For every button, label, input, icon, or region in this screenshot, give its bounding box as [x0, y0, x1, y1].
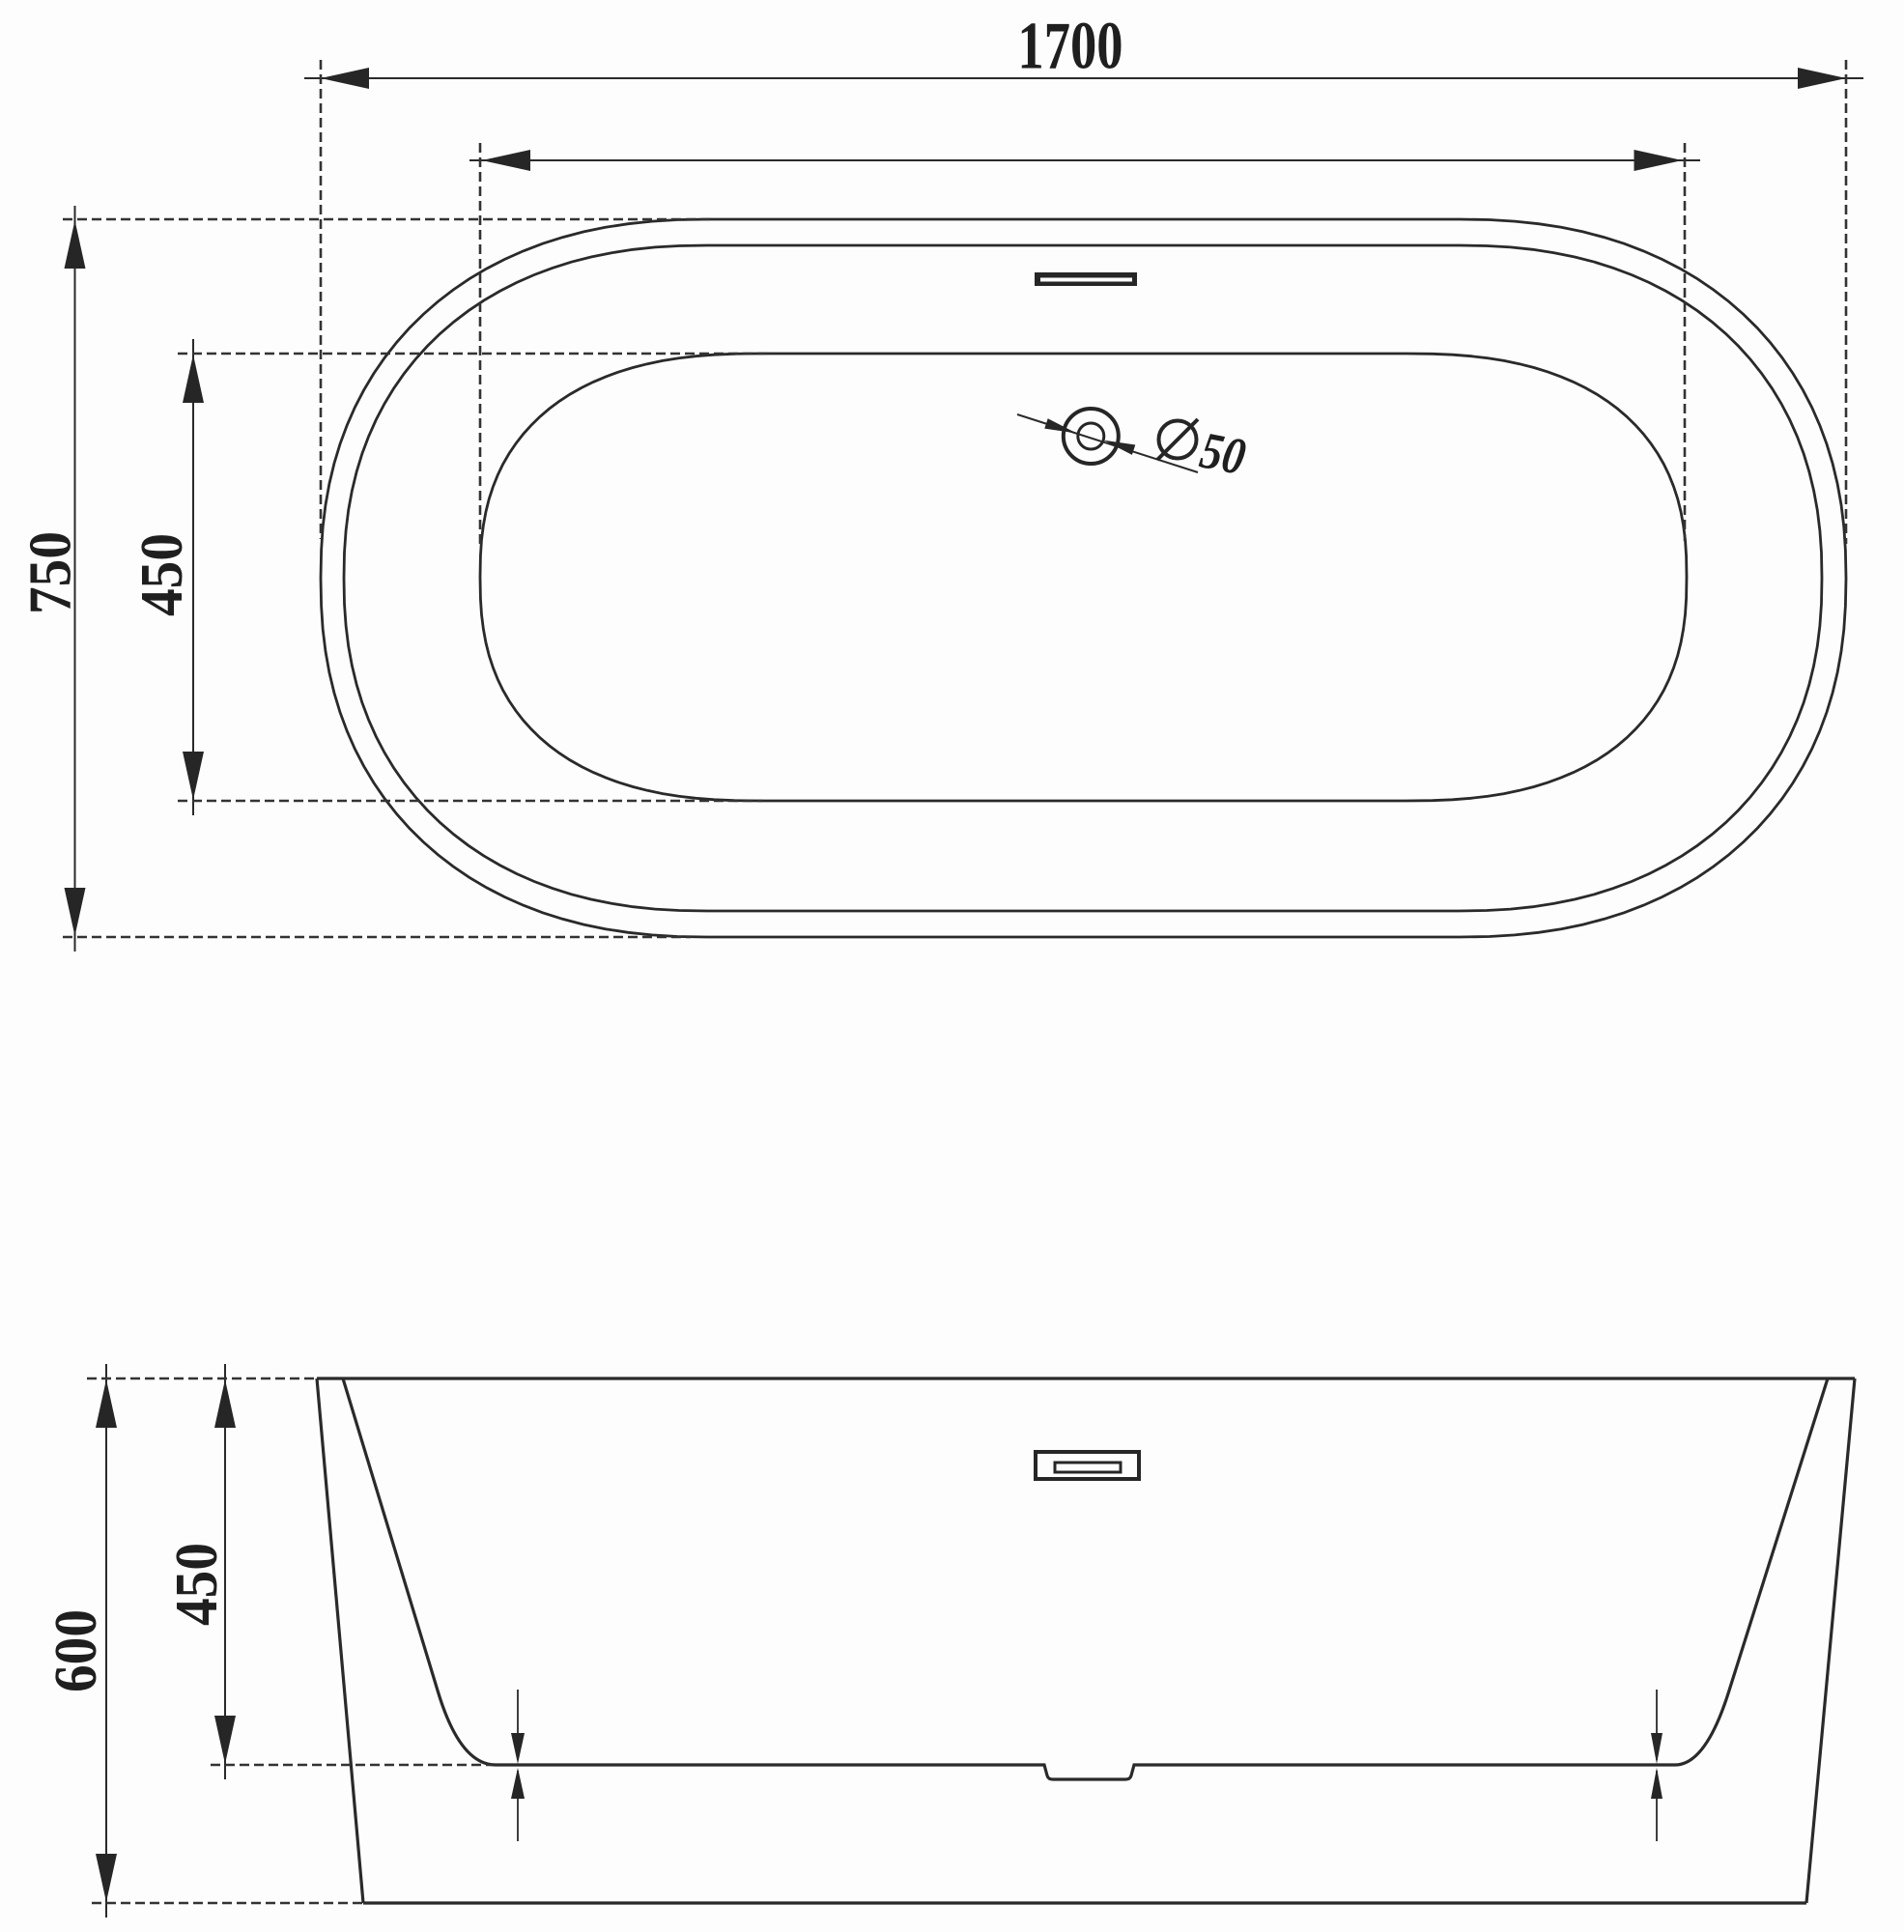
svg-text:600: 600	[42, 1609, 109, 1692]
svg-text:1700: 1700	[1017, 8, 1123, 83]
svg-text:450: 450	[162, 1543, 230, 1626]
svg-text:750: 750	[16, 531, 84, 614]
svg-text:450: 450	[128, 533, 195, 616]
